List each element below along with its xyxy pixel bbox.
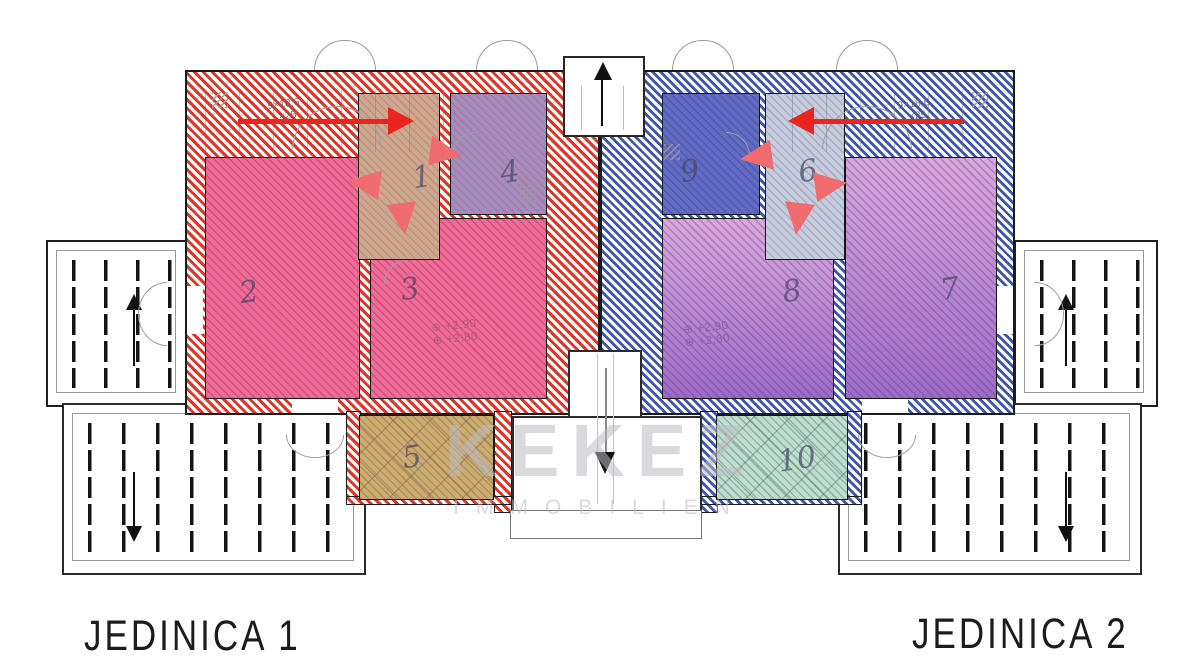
door-opening [187, 286, 203, 334]
door-opening [292, 399, 338, 413]
floor-plan: 1 2 3 4 5 6 7 8 9 10 ⊕ +2,90 ⊕ +2,80 ⊕ +… [0, 0, 1200, 670]
room-8-number: 8 [768, 271, 817, 312]
terrace-arrow-shaft [1065, 308, 1067, 366]
dormer-arc [476, 40, 538, 71]
flow-arrow-left [738, 140, 774, 174]
up-arrow-icon [594, 62, 612, 80]
level-value: +2,80 [446, 331, 479, 346]
unit2-label: JEDINICA 2 [912, 610, 1129, 659]
unit2-level-annotation: ⊕ +2,90 ⊕ +2,80 [683, 320, 731, 351]
watermark-brand-sub: IMMOBILIEN [340, 496, 860, 520]
unit1-entrance-arrow-head [388, 107, 414, 135]
vestibule-guide-line [623, 86, 624, 130]
door-opening [862, 399, 908, 413]
dormer-arc [836, 40, 898, 71]
room-2-number: 2 [225, 272, 274, 313]
door-opening [997, 286, 1013, 334]
watermark: KEKEZ IMMOBILIEN [340, 414, 860, 520]
level-mark-icon: ⊕ [683, 323, 694, 336]
level-mark-icon: ⊕ [431, 321, 442, 334]
down-arrow-icon [126, 526, 142, 542]
terrace-arrow-shaft [133, 472, 135, 528]
unit1-label: JEDINICA 1 [84, 612, 301, 661]
unit2-entrance-arrow-head [788, 107, 814, 135]
wall-joint-mark [972, 92, 988, 108]
flow-arrow-right [813, 168, 849, 202]
level-value: +2,80 [698, 333, 731, 348]
room-4-number: 4 [486, 152, 535, 193]
flow-arrow-left [346, 166, 382, 200]
unit2-entrance-arrow-shaft [812, 119, 964, 124]
watermark-brand: KEKEZ [340, 414, 860, 488]
wall-joint-mark [520, 186, 536, 202]
dormer-arc [672, 40, 734, 71]
vestibule-guide-line [581, 86, 582, 130]
vestibule-arrow-shaft [601, 78, 603, 126]
terrace-arrow-shaft [1065, 472, 1067, 528]
level-mark-icon: ⊕ [432, 334, 443, 347]
terrace-arrow-shaft [133, 308, 135, 366]
flow-arrow-down [781, 201, 815, 236]
flow-arrow-right [428, 136, 464, 170]
down-arrow-icon [1058, 526, 1074, 542]
dormer-arc [314, 40, 376, 71]
room-7-number: 7 [926, 269, 975, 310]
unit1-level-annotation: ⊕ +2,90 ⊕ +2,80 [431, 318, 479, 349]
level-mark-icon: ⊕ [684, 336, 695, 349]
unit1-entrance-arrow-shaft [238, 119, 390, 124]
wall-joint-mark [212, 92, 228, 108]
room-9-number: 9 [666, 151, 715, 192]
room-3-number: 3 [386, 269, 435, 310]
flow-arrow-down [386, 201, 420, 236]
room-7 [845, 157, 997, 399]
